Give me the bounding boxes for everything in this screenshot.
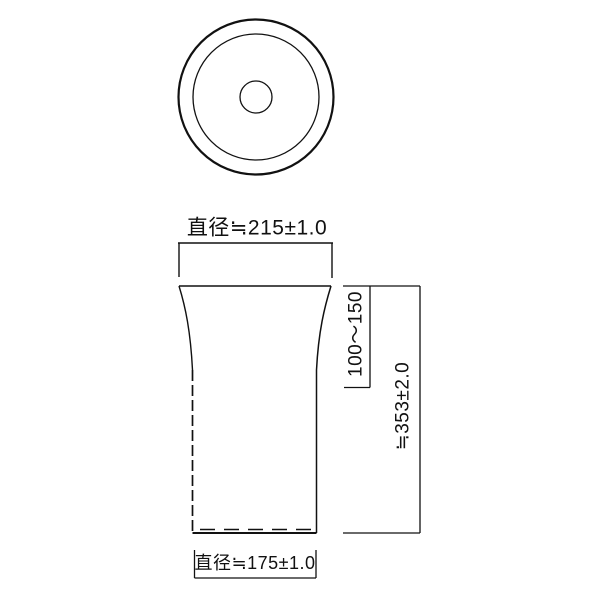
washbasin-dimension-drawing: 直径≒215±1.0 100〜150 ≒353±2.0 直径≒175±1.0 [0, 0, 600, 600]
drawing-linework [0, 0, 600, 600]
top-diameter-dimension [178, 243, 333, 278]
upper-height-range-label: 100〜150 [347, 291, 366, 377]
top-view [179, 20, 334, 175]
bottom-diameter-label: 直径≒175±1.0 [194, 554, 315, 572]
inner-rim-circle [193, 34, 319, 160]
drain-hole-circle [240, 81, 272, 113]
total-height-label: ≒353±2.0 [394, 362, 413, 450]
side-view [179, 286, 331, 533]
top-diameter-label: 直径≒215±1.0 [187, 218, 327, 239]
basin-left-profile-curve [179, 286, 193, 370]
basin-right-profile [317, 286, 332, 533]
outer-rim-circle [179, 20, 334, 175]
